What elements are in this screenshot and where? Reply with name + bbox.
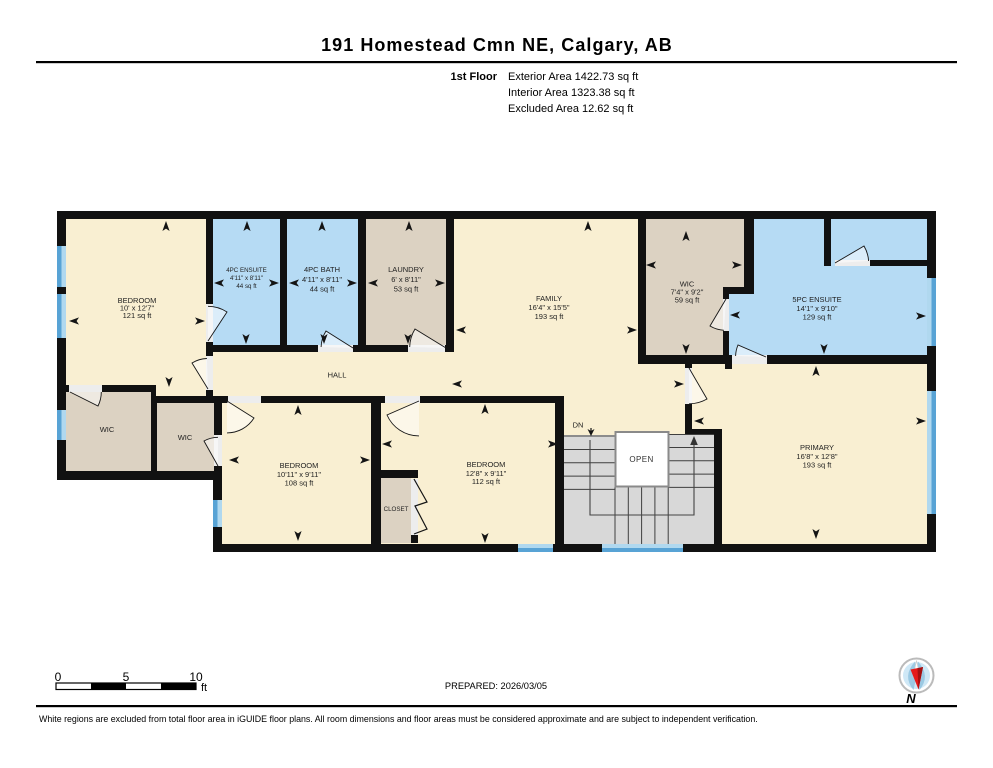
svg-text:16'4" x 15'5": 16'4" x 15'5" <box>528 303 569 312</box>
svg-text:4'11" x 8'11": 4'11" x 8'11" <box>230 275 263 282</box>
svg-text:Excluded Area 12.62 sq ft: Excluded Area 12.62 sq ft <box>508 103 633 115</box>
svg-text:6' x 8'11": 6' x 8'11" <box>391 275 421 284</box>
svg-text:LAUNDRY: LAUNDRY <box>388 265 424 274</box>
svg-text:Interior Area 1323.38 sq ft: Interior Area 1323.38 sq ft <box>508 87 635 99</box>
svg-text:WIC: WIC <box>100 425 115 434</box>
svg-text:129 sq ft: 129 sq ft <box>803 313 833 322</box>
svg-text:108 sq ft: 108 sq ft <box>285 479 315 488</box>
svg-text:44 sq ft: 44 sq ft <box>236 283 257 290</box>
svg-text:PREPARED: 2026/03/05: PREPARED: 2026/03/05 <box>445 681 547 691</box>
svg-text:193 sq ft: 193 sq ft <box>535 312 565 321</box>
svg-text:121 sq ft: 121 sq ft <box>123 311 153 320</box>
svg-text:BEDROOM: BEDROOM <box>280 461 319 470</box>
svg-text:191 Homestead Cmn NE, Calgary,: 191 Homestead Cmn NE, Calgary, AB <box>321 35 673 55</box>
svg-text:193 sq ft: 193 sq ft <box>803 461 833 470</box>
svg-text:Exterior Area 1422.73 sq ft: Exterior Area 1422.73 sq ft <box>508 71 638 83</box>
svg-text:59 sq ft: 59 sq ft <box>675 296 701 305</box>
svg-text:CLOSET: CLOSET <box>384 506 409 513</box>
svg-text:1st Floor: 1st Floor <box>451 71 498 83</box>
svg-text:HALL: HALL <box>328 371 347 380</box>
svg-text:5PC ENSUITE: 5PC ENSUITE <box>792 295 841 304</box>
svg-text:44 sq ft: 44 sq ft <box>310 285 336 294</box>
svg-text:4PC ENSUITE: 4PC ENSUITE <box>226 267 267 274</box>
svg-text:53 sq ft: 53 sq ft <box>394 285 420 294</box>
svg-text:4PC BATH: 4PC BATH <box>304 265 340 274</box>
svg-text:PRIMARY: PRIMARY <box>800 443 834 452</box>
svg-text:ft: ft <box>201 682 207 694</box>
svg-text:N: N <box>906 691 916 706</box>
svg-text:4'11" x 8'11": 4'11" x 8'11" <box>302 275 342 284</box>
svg-text:OPEN: OPEN <box>629 455 653 464</box>
svg-text:White regions are excluded fro: White regions are excluded from total fl… <box>39 714 758 724</box>
svg-text:FAMILY: FAMILY <box>536 294 562 303</box>
svg-text:BEDROOM: BEDROOM <box>467 460 506 469</box>
svg-text:5: 5 <box>123 670 130 684</box>
svg-text:0: 0 <box>55 670 62 684</box>
svg-text:DN: DN <box>573 421 584 430</box>
svg-text:WIC: WIC <box>178 433 193 442</box>
svg-text:112 sq ft: 112 sq ft <box>472 477 501 486</box>
